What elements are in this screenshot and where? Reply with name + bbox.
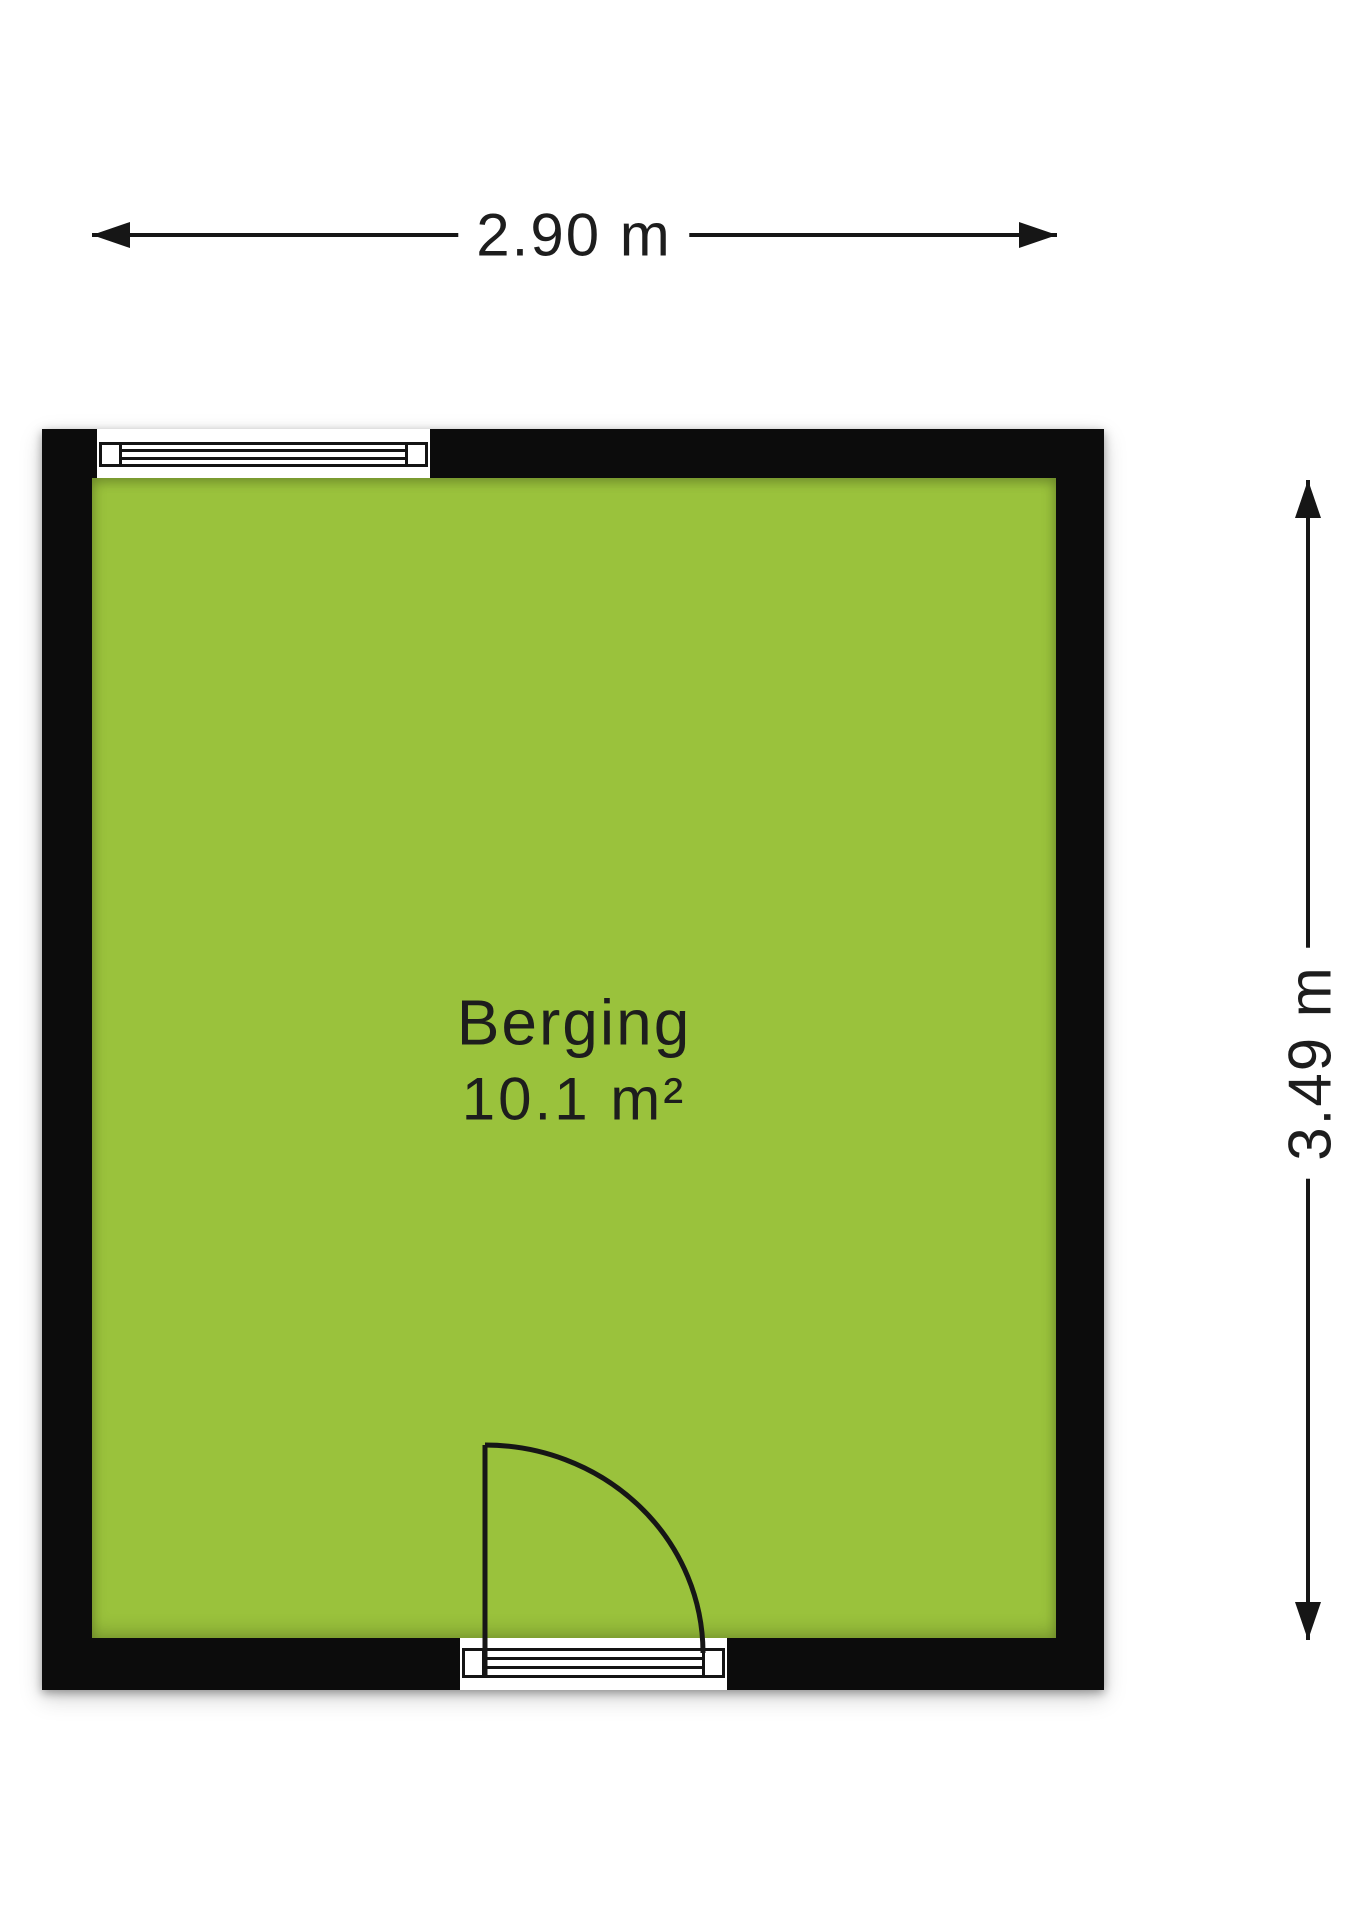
building-walls: Berging 10.1 m² bbox=[42, 429, 1104, 1690]
door-threshold-glass bbox=[485, 1651, 702, 1675]
arrow-right-icon bbox=[1019, 222, 1057, 248]
door-pane-line bbox=[485, 1657, 702, 1660]
door-pane-line bbox=[485, 1666, 702, 1669]
dimension-height-label: 3.49 m bbox=[1276, 947, 1345, 1178]
window-post bbox=[102, 445, 122, 464]
window-pane-line bbox=[122, 449, 405, 452]
room-area: 10.1 m² bbox=[457, 1070, 692, 1130]
arrow-left-icon bbox=[92, 222, 130, 248]
window-post bbox=[405, 445, 425, 464]
arrow-up-icon bbox=[1295, 480, 1321, 518]
arrow-down-icon bbox=[1295, 1602, 1321, 1640]
door-frame bbox=[462, 1648, 725, 1678]
dimension-width-label: 2.90 m bbox=[458, 201, 689, 270]
window-pane-line bbox=[122, 457, 405, 460]
window-frame bbox=[99, 442, 428, 467]
window-glass bbox=[122, 445, 405, 464]
room-name: Berging bbox=[457, 991, 692, 1055]
door-post bbox=[465, 1651, 485, 1675]
room-label: Berging 10.1 m² bbox=[457, 991, 692, 1130]
window-icon bbox=[97, 429, 430, 478]
floorplan-canvas: 2.90 m 3.49 m bbox=[0, 0, 1358, 1920]
door-post bbox=[702, 1651, 722, 1675]
door-threshold-icon bbox=[460, 1638, 727, 1690]
